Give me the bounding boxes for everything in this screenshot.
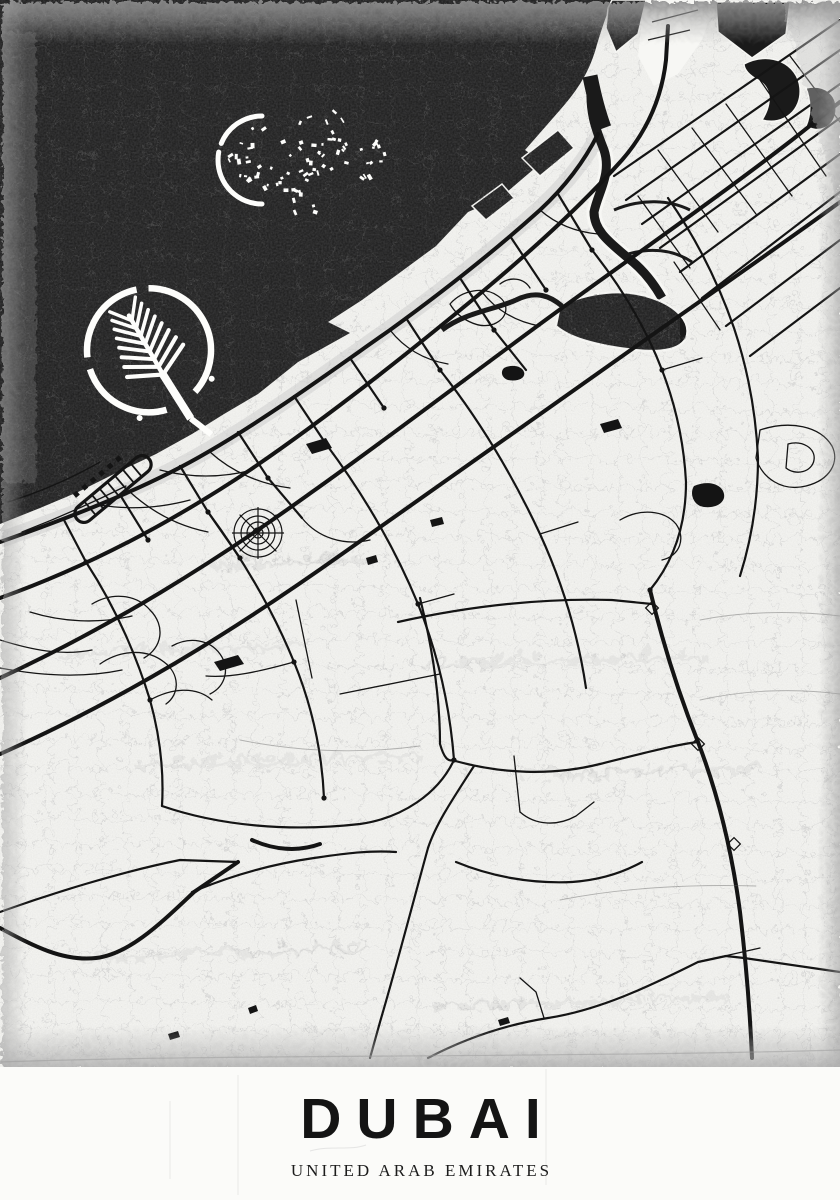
- poster-subtitle: UNITED ARAB EMIRATES: [0, 1161, 840, 1181]
- dubai-map-poster: DUBAI UNITED ARAB EMIRATES: [0, 0, 840, 1200]
- left-edge-grunge: [0, 0, 24, 1067]
- poster-title: DUBAI: [0, 1067, 840, 1148]
- poster-title-area: DUBAI UNITED ARAB EMIRATES: [0, 1067, 840, 1200]
- roundabout-web: [232, 507, 284, 559]
- right-edge-grunge: [816, 0, 840, 1067]
- map-svg: [0, 0, 840, 1067]
- top-edge-grunge: [0, 0, 840, 42]
- map-area: [0, 0, 840, 1067]
- bottom-fade: [0, 1024, 840, 1067]
